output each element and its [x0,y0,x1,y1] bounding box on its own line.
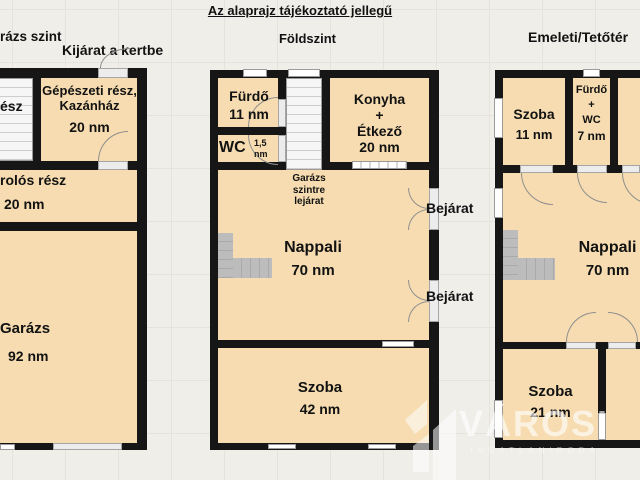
room-door-opening [622,165,640,173]
room-area: 11 nm [503,128,565,143]
window [352,161,407,169]
room-name-line: + [330,107,429,123]
wall [565,78,573,165]
small-bedroom-label: Szoba 11 nm [503,106,565,143]
storage-room-name: rolós rész [0,172,66,188]
watermark-brand: VÁROSI [448,403,620,445]
bathroom-door-opening [577,165,607,173]
window [494,188,503,218]
window [368,444,396,449]
bathroom-label: Fürdő 11 nm [218,88,280,122]
plan-disclaimer-title: Az alaprajz tájékoztató jellegű [140,4,460,19]
kitchen-label: Konyha + Étkező 20 nm [330,91,429,155]
room-area: 70 nm [248,262,378,279]
room-name: Szoba [503,106,565,122]
garage-level-header: rázs szint [0,29,62,45]
garage-room-name: Garázs [0,320,50,337]
room-area: 42 nm [255,401,385,417]
wall [495,70,640,78]
living-room-stairs [218,233,233,278]
room-name: Szoba [503,383,598,400]
room-name: Nappali [540,239,640,257]
window [288,69,320,77]
room-name: Gépészeti rész, Kazánház [42,84,137,114]
bedroom-label: Szoba 42 nm [255,379,385,417]
storage-room-area: 20 nm [4,196,44,212]
room-name: Fürdő [218,88,280,104]
garage-level-staircase [0,78,33,161]
stair-note-label: Garázs szintre lejárat [284,173,334,208]
wall [322,78,330,170]
watermark-subtitle: INGATLANIRODA [450,446,620,455]
wall [137,68,147,450]
floor-plan-image: Az alaprajz tájékoztató jellegű rázs szi… [0,0,640,480]
bathroom-wc-label: Fürdő + WC 7 nm [573,83,610,144]
garden-door-opening [98,68,128,78]
wall [210,70,218,450]
bedroom-door-opening [566,342,596,349]
room-name-line: Fürdő [573,83,610,98]
garage-room-area: 92 nm [8,348,48,364]
window [0,444,15,450]
window [382,341,414,347]
wc-name: WC [219,139,246,157]
stair-note-text: Garázs szintre lejárat [284,173,334,208]
room-door-opening [608,342,636,349]
living-room-label: Nappali 70 nm [248,239,378,280]
ground-floor-header: Földszint [240,32,375,47]
wall [610,78,618,165]
window [268,444,296,449]
room-name-line: Konyha [330,91,429,107]
window [243,69,267,77]
living-room-label: Nappali 70 nm [540,239,640,280]
mechanical-door-opening [98,161,128,170]
wall [33,78,41,161]
room-area: 20 nm [42,119,137,135]
room-name-line: WC [573,113,610,128]
upper-floor-header: Emeleti/Tetőtér [528,29,628,45]
wall [0,222,137,231]
living-room-stairs [503,230,518,280]
wall [218,127,286,135]
room-name-line: + [573,98,610,113]
room-name-line: Étkező [330,123,429,139]
room-area: 11 nm [218,106,280,122]
wc-door-opening [278,135,286,162]
room-name: Nappali [248,239,378,257]
garage-door-opening [53,443,122,450]
room-area: 7 nm [573,128,610,144]
window [583,69,600,77]
entrance-label-bottom: Bejárat [426,288,473,304]
window [494,98,503,138]
ground-floor-staircase [286,78,322,170]
stair-room-label: ész [0,98,23,114]
room-name: Szoba [255,379,385,396]
wc-area-value: 1,5 [254,138,267,148]
entrance-label-top: Bejárat [426,200,473,216]
wc-area-unit: nm [254,149,268,159]
mechanical-room-label: Gépészeti rész, Kazánház 20 nm [42,84,137,135]
bedroom-door-opening [520,165,553,173]
room-area: 70 nm [540,262,640,279]
room-area: 20 nm [330,139,429,155]
